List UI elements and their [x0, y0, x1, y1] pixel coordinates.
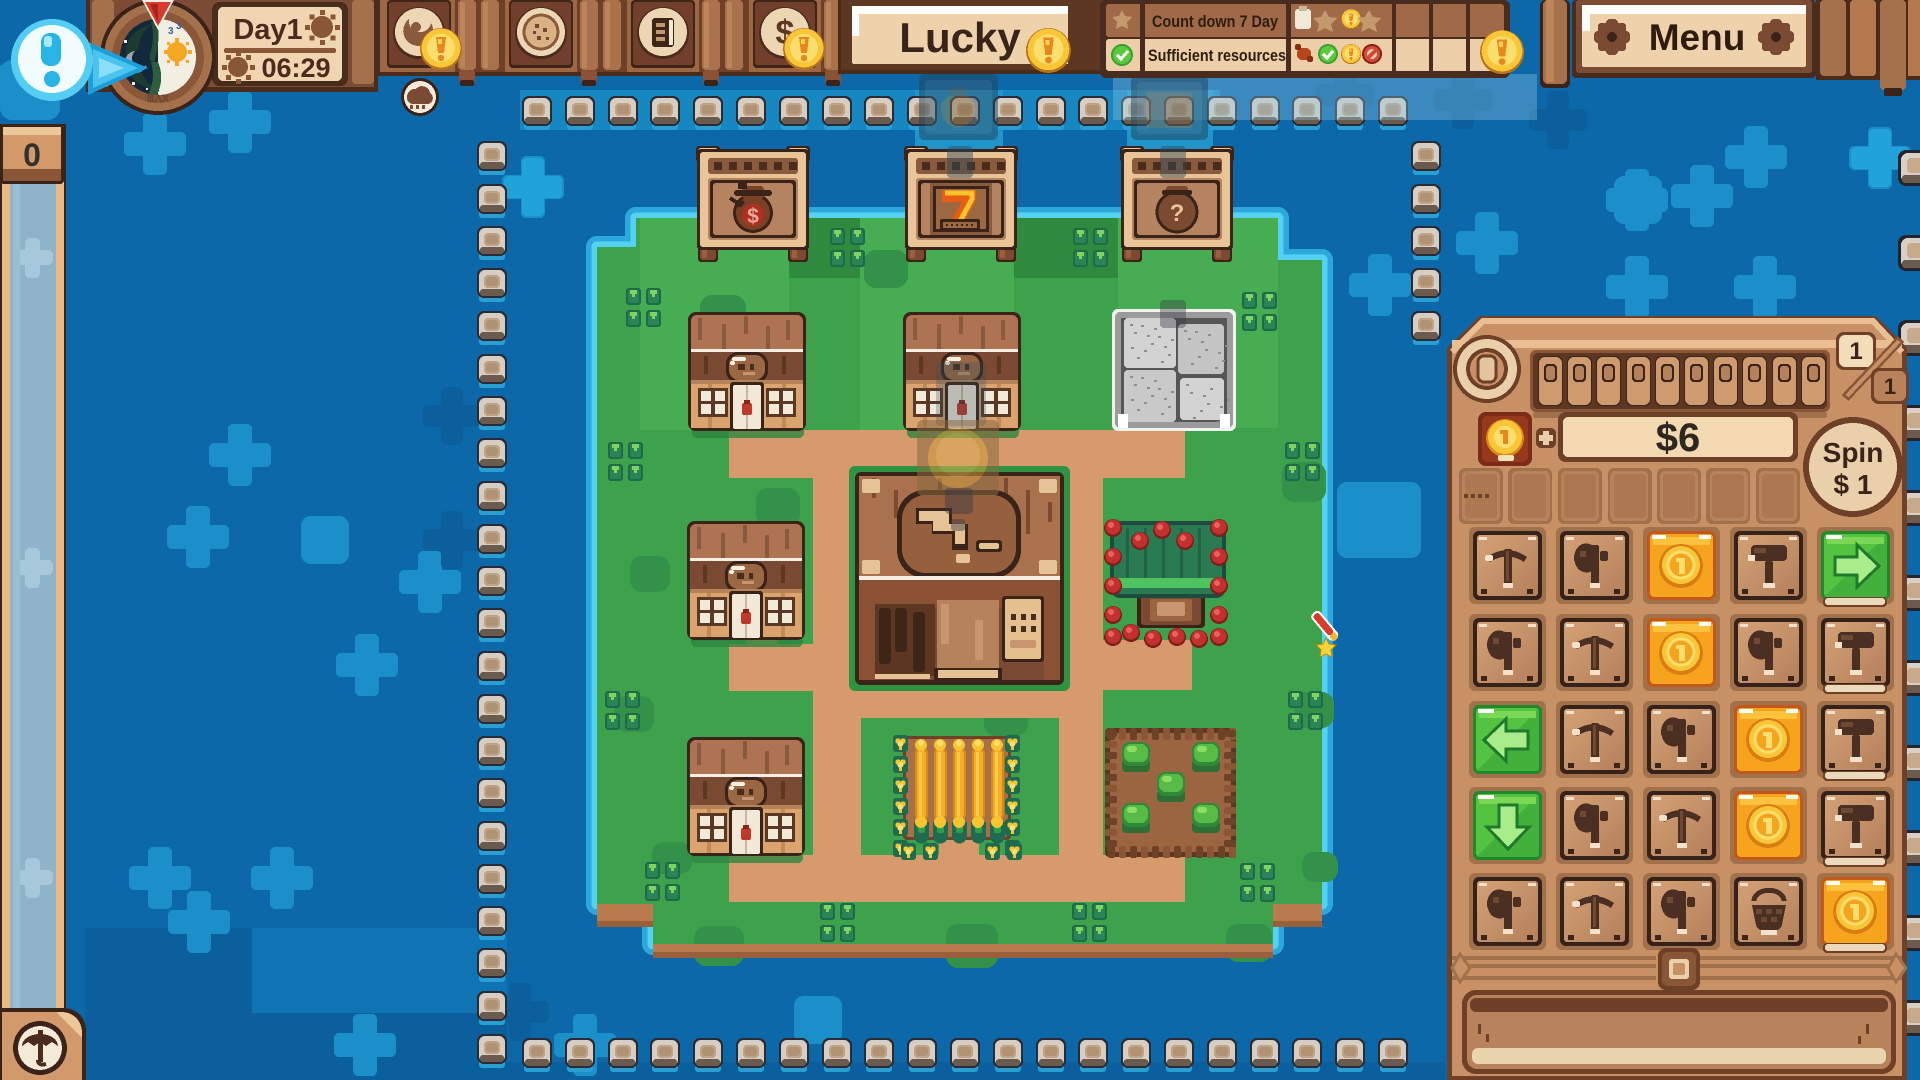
svg-text:Sufficient resources: Sufficient resources [1148, 46, 1286, 65]
svg-text:Day1: Day1 [233, 14, 302, 46]
svg-text:06:29: 06:29 [261, 53, 330, 83]
svg-text:3: 3 [176, 21, 182, 32]
svg-text:$6: $6 [1656, 416, 1701, 460]
svg-text:1: 1 [1849, 338, 1862, 365]
svg-text:0: 0 [23, 137, 41, 173]
svg-text:3: 3 [168, 26, 174, 37]
svg-text:?: ? [1170, 200, 1185, 227]
svg-text:Count down 7 Day: Count down 7 Day [1152, 12, 1278, 31]
svg-text:Menu: Menu [1649, 17, 1746, 58]
svg-text:$ 1: $ 1 [1834, 469, 1873, 500]
svg-text:ⅢΛX: ⅢΛX [147, 93, 170, 105]
svg-text:Lucky: Lucky [899, 14, 1021, 61]
svg-text:Spin: Spin [1823, 437, 1884, 468]
svg-text:1: 1 [1884, 374, 1896, 399]
svg-text:$: $ [747, 205, 759, 228]
